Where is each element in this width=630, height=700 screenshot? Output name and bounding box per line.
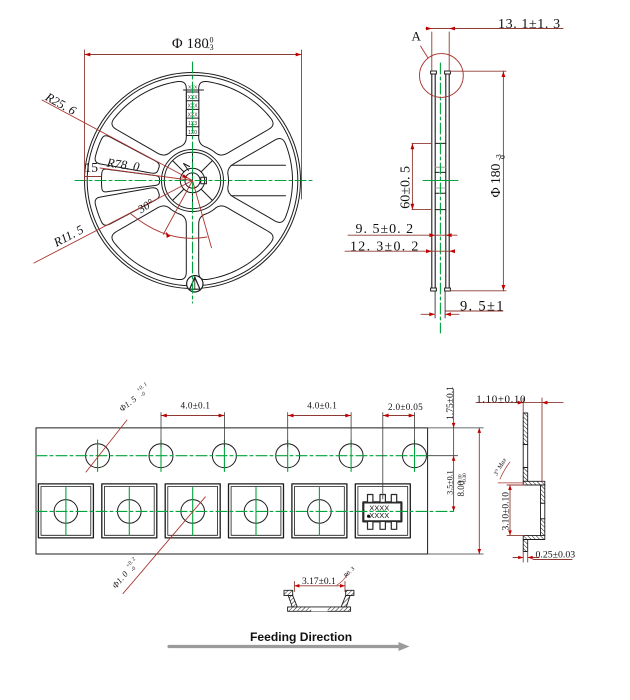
svg-text:4.0±0.1: 4.0±0.1 [181,401,211,411]
svg-text:13. 1±1. 3: 13. 1±1. 3 [498,17,561,32]
svg-text:Φ 180: Φ 180 [489,164,504,198]
svg-text:3.5±0.1: 3.5±0.1 [446,470,455,494]
svg-text:15: 15 [85,160,99,175]
svg-text:Φ 180: Φ 180 [172,36,209,52]
svg-text:12. 3±0. 2: 12. 3±0. 2 [350,240,420,255]
svg-text:9. 5±1: 9. 5±1 [460,298,505,314]
svg-text:A: A [412,29,422,44]
svg-text:4.0±0.1: 4.0±0.1 [307,401,337,411]
svg-text:+0.30: +0.30 [463,473,468,485]
svg-text:-3: -3 [207,43,214,52]
svg-text:9. 5±0. 2: 9. 5±0. 2 [356,222,415,237]
svg-text:-3: -3 [494,154,503,160]
svg-text:0.25±0.03: 0.25±0.03 [536,550,576,561]
svg-text:-0.10: -0.10 [459,474,464,485]
svg-text:60±0. 5: 60±0. 5 [399,166,414,209]
svg-text:3.17±0.1: 3.17±0.1 [302,577,336,587]
svg-text:Feeding Direction: Feeding Direction [250,630,352,644]
svg-text:3.10±0.10: 3.10±0.10 [502,492,512,531]
svg-text:XXXX: XXXX [369,511,389,520]
svg-text:1.75±0.1: 1.75±0.1 [446,386,456,420]
svg-text:2.0±0.05: 2.0±0.05 [388,402,423,412]
svg-text:1.10±0.10: 1.10±0.10 [476,393,526,405]
